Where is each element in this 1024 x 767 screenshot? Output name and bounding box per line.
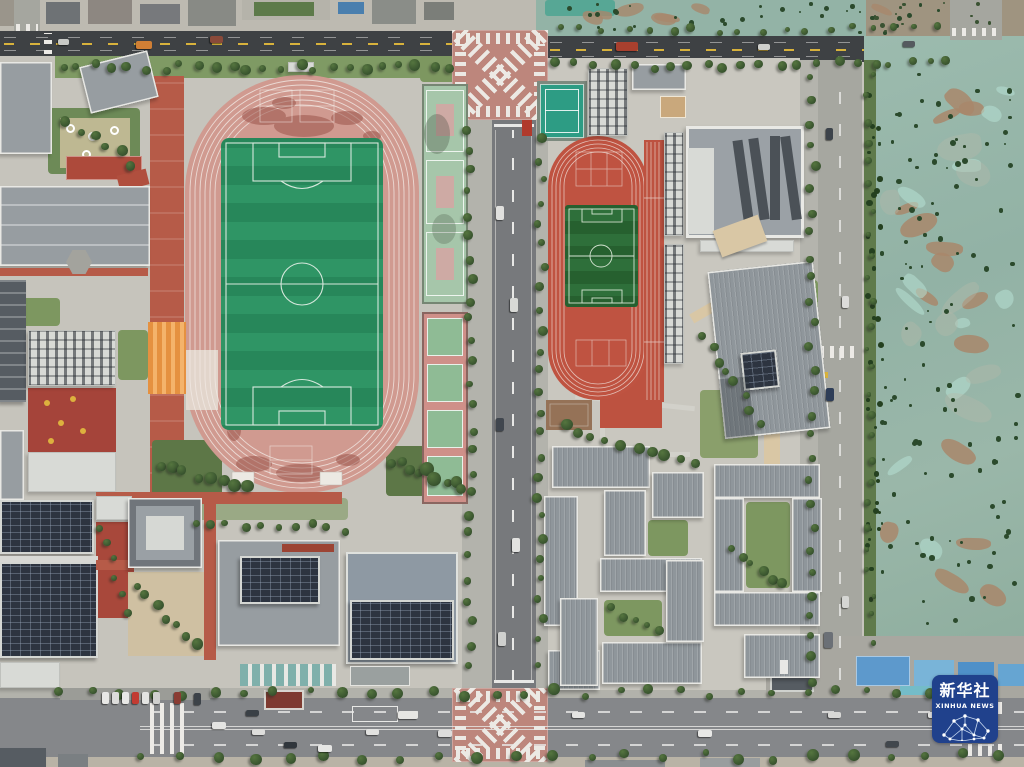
vehicle bbox=[826, 128, 833, 140]
tree bbox=[539, 614, 548, 623]
vehicle bbox=[132, 692, 139, 704]
tree bbox=[177, 465, 186, 474]
vehicle bbox=[698, 730, 712, 737]
shrub bbox=[962, 158, 968, 164]
tree bbox=[538, 239, 545, 246]
tree bbox=[854, 59, 862, 67]
tree bbox=[698, 332, 706, 340]
tree bbox=[869, 432, 875, 438]
shrub bbox=[909, 207, 915, 213]
scenery-shape bbox=[320, 472, 342, 485]
tree bbox=[242, 523, 251, 532]
dormitory-building bbox=[666, 560, 704, 642]
low-building bbox=[350, 666, 410, 686]
shrub bbox=[884, 386, 887, 389]
crosswalk bbox=[16, 24, 38, 31]
tree bbox=[541, 176, 547, 182]
tree bbox=[868, 479, 875, 486]
scenery-shape bbox=[964, 723, 967, 726]
tree bbox=[309, 519, 318, 528]
shrub bbox=[929, 555, 934, 560]
tree bbox=[993, 750, 1004, 761]
dormitory-building bbox=[602, 642, 702, 684]
tree bbox=[431, 62, 440, 71]
tree bbox=[865, 119, 872, 126]
lane-line bbox=[150, 711, 1024, 713]
shrub bbox=[874, 16, 878, 20]
scenery-shape bbox=[952, 719, 955, 722]
court-green bbox=[427, 364, 463, 402]
building-roof bbox=[424, 2, 454, 20]
tree bbox=[760, 29, 767, 36]
vehicle bbox=[284, 742, 297, 748]
shrub bbox=[969, 596, 975, 602]
shrub bbox=[799, 11, 801, 13]
shrub bbox=[898, 207, 901, 210]
tree bbox=[810, 386, 819, 395]
tree bbox=[792, 60, 801, 69]
bike-shed-row bbox=[240, 664, 336, 686]
rooftop-solar-array bbox=[240, 556, 320, 604]
solar-roof-building bbox=[0, 562, 98, 658]
scenery-shape bbox=[961, 739, 964, 740]
tree bbox=[240, 690, 248, 698]
shrub bbox=[949, 473, 953, 477]
shrub bbox=[820, 14, 824, 18]
tree bbox=[868, 411, 876, 419]
bus-stop-box bbox=[352, 706, 398, 722]
tree bbox=[867, 392, 871, 396]
tree bbox=[535, 365, 543, 373]
tree bbox=[471, 752, 483, 764]
shrub bbox=[985, 142, 989, 146]
vehicle bbox=[826, 388, 834, 401]
shrub bbox=[957, 563, 960, 566]
shrub bbox=[971, 253, 976, 258]
tree bbox=[409, 59, 420, 70]
shrub bbox=[759, 5, 762, 8]
shrub bbox=[926, 622, 929, 625]
shrub bbox=[948, 114, 953, 119]
center-line bbox=[839, 80, 841, 680]
tree bbox=[706, 693, 713, 700]
tree bbox=[769, 756, 777, 764]
building-roof bbox=[700, 758, 760, 767]
aerial-photo-campus: 新华社 XINHUA NEWS bbox=[0, 0, 1024, 767]
tree bbox=[717, 30, 723, 36]
worn-patch bbox=[432, 214, 456, 244]
tree bbox=[124, 609, 132, 617]
yellow-dot bbox=[48, 438, 54, 444]
shrub bbox=[955, 161, 961, 167]
tree bbox=[206, 520, 215, 529]
tree bbox=[768, 690, 774, 696]
building-roof bbox=[372, 0, 416, 24]
shrub bbox=[1008, 116, 1012, 120]
shrub bbox=[780, 7, 785, 12]
shrub bbox=[922, 363, 925, 366]
tree bbox=[318, 750, 328, 760]
tree bbox=[892, 689, 901, 698]
shrub bbox=[901, 23, 904, 26]
tree bbox=[96, 525, 103, 532]
shrub bbox=[917, 73, 920, 76]
building-roof bbox=[585, 760, 665, 767]
tree bbox=[142, 66, 151, 75]
shrub bbox=[872, 316, 876, 320]
tree bbox=[548, 683, 559, 694]
tree bbox=[541, 263, 549, 271]
tree bbox=[117, 145, 128, 156]
small-running-track-stadium bbox=[546, 134, 664, 434]
scenery-shape bbox=[331, 111, 363, 125]
tree bbox=[459, 691, 470, 702]
tree bbox=[651, 65, 660, 74]
tree bbox=[534, 595, 541, 602]
tree bbox=[738, 688, 745, 695]
shrub bbox=[1010, 262, 1015, 267]
tree bbox=[91, 131, 100, 140]
building-roof bbox=[188, 0, 236, 26]
shrub bbox=[877, 176, 882, 181]
tree bbox=[61, 64, 67, 70]
shrub bbox=[1012, 581, 1017, 586]
vehicle bbox=[142, 692, 149, 704]
tree bbox=[869, 457, 876, 464]
central-road bbox=[492, 58, 536, 705]
tree bbox=[722, 368, 729, 375]
shrub bbox=[760, 15, 763, 18]
vehicle bbox=[194, 693, 201, 705]
scenery-shape bbox=[961, 727, 964, 730]
scenery-shape bbox=[963, 714, 966, 717]
shrub bbox=[922, 600, 925, 603]
tree bbox=[212, 62, 222, 72]
vehicle bbox=[572, 712, 585, 718]
shrub bbox=[909, 266, 912, 269]
shrub bbox=[987, 564, 993, 570]
tree bbox=[379, 62, 386, 69]
vehicle bbox=[174, 692, 181, 704]
blue-shed bbox=[998, 664, 1024, 686]
shrub bbox=[891, 140, 894, 143]
zebra-stripes bbox=[455, 700, 466, 750]
court-key-pink bbox=[436, 248, 454, 280]
tree bbox=[309, 67, 316, 74]
yellow-dot bbox=[80, 428, 86, 434]
tan-roof-building bbox=[660, 96, 686, 118]
tree bbox=[536, 555, 544, 563]
tree bbox=[808, 678, 817, 687]
tree bbox=[619, 613, 628, 622]
tree bbox=[868, 323, 875, 330]
tree bbox=[463, 213, 472, 222]
scenery-shape bbox=[949, 737, 952, 740]
vacant-lot bbox=[864, 36, 1024, 642]
tree bbox=[710, 343, 718, 351]
vehicle bbox=[122, 692, 129, 704]
tree bbox=[828, 27, 834, 33]
shrub bbox=[936, 101, 942, 107]
shrub bbox=[929, 321, 931, 323]
crosswalk bbox=[150, 703, 184, 754]
tree bbox=[958, 748, 968, 758]
vehicle bbox=[886, 741, 899, 747]
solar-roof-building bbox=[0, 500, 94, 554]
tree bbox=[870, 298, 877, 305]
tree bbox=[534, 388, 542, 396]
tree bbox=[214, 752, 224, 762]
shrub bbox=[914, 124, 918, 128]
vehicle bbox=[616, 42, 638, 51]
shrub bbox=[850, 4, 854, 8]
tree bbox=[111, 555, 117, 561]
vehicle bbox=[318, 745, 332, 752]
vehicle bbox=[136, 41, 152, 49]
shrub bbox=[983, 596, 986, 599]
vehicle bbox=[58, 39, 69, 45]
shrub bbox=[907, 13, 912, 18]
crosswalk bbox=[952, 28, 1000, 36]
terracotta-walkway bbox=[150, 76, 184, 500]
shrub bbox=[883, 421, 887, 425]
shrub bbox=[895, 113, 898, 116]
shrub bbox=[869, 567, 873, 571]
tree bbox=[464, 551, 471, 558]
vehicle bbox=[758, 44, 770, 50]
shrub bbox=[876, 479, 880, 483]
tree bbox=[677, 686, 684, 693]
tree bbox=[808, 412, 816, 420]
tree bbox=[140, 590, 148, 598]
shrub bbox=[975, 178, 978, 181]
tree bbox=[435, 752, 443, 760]
tree bbox=[805, 184, 814, 193]
scenery-shape bbox=[973, 733, 976, 736]
courtyard-green bbox=[254, 2, 314, 16]
shrub bbox=[902, 3, 905, 6]
shrub bbox=[613, 28, 616, 31]
vehicle bbox=[842, 596, 849, 608]
tree bbox=[276, 524, 283, 531]
lane-line bbox=[4, 50, 454, 51]
tower-building bbox=[0, 280, 26, 402]
shrub bbox=[900, 277, 903, 280]
shrub bbox=[1012, 324, 1015, 327]
shrub bbox=[866, 200, 872, 206]
shrub bbox=[963, 145, 966, 148]
tree bbox=[535, 282, 544, 291]
tree bbox=[807, 142, 813, 148]
tree bbox=[785, 27, 790, 32]
shrub bbox=[1008, 163, 1013, 168]
tree bbox=[395, 61, 402, 68]
shrub bbox=[859, 11, 861, 13]
vehicle bbox=[246, 710, 259, 716]
tree bbox=[468, 356, 477, 365]
shrub bbox=[978, 468, 982, 472]
shrub bbox=[1014, 436, 1018, 440]
tree bbox=[643, 684, 652, 693]
low-building bbox=[0, 662, 60, 688]
tree bbox=[342, 528, 349, 535]
tree bbox=[405, 465, 414, 474]
yellow-dot bbox=[58, 420, 64, 426]
dorm-courtyard bbox=[746, 502, 790, 588]
tree bbox=[464, 511, 474, 521]
tree bbox=[493, 691, 502, 700]
tree bbox=[734, 29, 740, 35]
school-building bbox=[96, 496, 132, 520]
red-sign bbox=[522, 120, 532, 136]
tree bbox=[362, 64, 372, 74]
vehicle bbox=[212, 722, 226, 729]
tree bbox=[520, 691, 528, 699]
scenery-shape bbox=[942, 733, 945, 736]
tree bbox=[162, 615, 170, 623]
dormitory-building bbox=[652, 472, 704, 518]
tree bbox=[538, 534, 548, 544]
scenery-shape bbox=[986, 729, 989, 732]
tree bbox=[107, 63, 116, 72]
building-roof bbox=[46, 2, 80, 24]
tree bbox=[589, 61, 597, 69]
tree bbox=[398, 457, 407, 466]
shrub bbox=[938, 236, 943, 241]
zebra-stripes bbox=[534, 700, 545, 750]
tree bbox=[869, 611, 874, 616]
shrub bbox=[881, 570, 884, 573]
shrub bbox=[809, 2, 813, 6]
shrub bbox=[935, 212, 939, 216]
dormitory-building bbox=[792, 498, 822, 592]
tree bbox=[848, 749, 860, 761]
courtyard-lawn bbox=[20, 298, 60, 326]
shrub bbox=[984, 266, 989, 271]
tree bbox=[126, 161, 136, 171]
tree bbox=[195, 474, 204, 483]
shrub bbox=[875, 501, 879, 505]
tree bbox=[619, 749, 629, 759]
blue-tarp bbox=[338, 2, 364, 14]
tree bbox=[464, 187, 471, 194]
center-double-line bbox=[140, 729, 1024, 730]
tree bbox=[192, 638, 203, 649]
tree bbox=[468, 274, 478, 284]
tree bbox=[427, 472, 440, 485]
tree bbox=[811, 318, 819, 326]
tree bbox=[744, 406, 753, 415]
tree bbox=[466, 256, 474, 264]
tree bbox=[259, 65, 266, 72]
shrub bbox=[740, 17, 745, 22]
tree bbox=[240, 65, 250, 75]
tree bbox=[182, 632, 191, 641]
shrub bbox=[944, 309, 949, 314]
tree bbox=[778, 61, 787, 70]
tree bbox=[205, 472, 216, 483]
tree bbox=[871, 25, 877, 31]
courtyard-building-outer bbox=[128, 498, 202, 568]
tree bbox=[468, 445, 477, 454]
shrub bbox=[881, 522, 883, 524]
tree bbox=[468, 337, 475, 344]
building-roof bbox=[0, 748, 46, 767]
center-line bbox=[512, 130, 514, 682]
dorm-courtyard bbox=[648, 520, 688, 556]
shrub bbox=[943, 407, 948, 412]
shrub bbox=[588, 13, 592, 17]
tree bbox=[211, 687, 221, 697]
tree bbox=[671, 27, 679, 35]
vehicle bbox=[903, 41, 915, 47]
scenery-shape bbox=[944, 716, 988, 741]
courtyard-lawn bbox=[118, 330, 148, 380]
tree bbox=[864, 499, 871, 506]
tree bbox=[911, 24, 917, 30]
court-net-line bbox=[545, 110, 579, 111]
tree bbox=[806, 547, 814, 555]
vehicle bbox=[828, 712, 841, 718]
tree bbox=[655, 626, 664, 635]
tree bbox=[463, 230, 473, 240]
tree bbox=[463, 598, 471, 606]
tree bbox=[387, 459, 396, 468]
yellow-dot bbox=[70, 396, 76, 402]
tree bbox=[866, 232, 870, 236]
shrub bbox=[880, 23, 885, 28]
worn-patch bbox=[424, 114, 450, 154]
shrub bbox=[904, 378, 906, 380]
building-roof bbox=[88, 0, 132, 24]
tree bbox=[468, 616, 477, 625]
shrub bbox=[888, 544, 893, 549]
tree bbox=[297, 59, 308, 70]
tree bbox=[466, 165, 475, 174]
tree bbox=[871, 640, 877, 646]
shrub bbox=[921, 265, 923, 267]
tree bbox=[717, 63, 727, 73]
shrub bbox=[992, 459, 998, 465]
lane-line bbox=[4, 37, 454, 38]
tree bbox=[456, 484, 466, 494]
center-double-line bbox=[140, 726, 1024, 727]
network-constellation-icon bbox=[938, 713, 992, 741]
edge-line bbox=[531, 130, 532, 680]
tree bbox=[615, 440, 626, 451]
scenery-shape bbox=[276, 464, 324, 482]
tree bbox=[470, 428, 478, 436]
shrub bbox=[1007, 88, 1012, 93]
tree bbox=[538, 454, 546, 462]
shrub bbox=[923, 233, 926, 236]
tree bbox=[754, 60, 763, 69]
tree bbox=[805, 227, 813, 235]
white-van bbox=[780, 660, 788, 674]
court-key-pink bbox=[436, 176, 454, 208]
shrub bbox=[596, 3, 599, 6]
large-running-track-stadium bbox=[184, 74, 420, 494]
skylight-strip bbox=[780, 136, 802, 221]
tree bbox=[157, 462, 166, 471]
school-building bbox=[28, 330, 116, 386]
tree bbox=[536, 307, 543, 314]
school-building bbox=[28, 452, 116, 492]
tree bbox=[627, 26, 633, 32]
vehicle bbox=[398, 711, 418, 719]
vehicle bbox=[252, 729, 265, 735]
shrub bbox=[906, 520, 910, 524]
